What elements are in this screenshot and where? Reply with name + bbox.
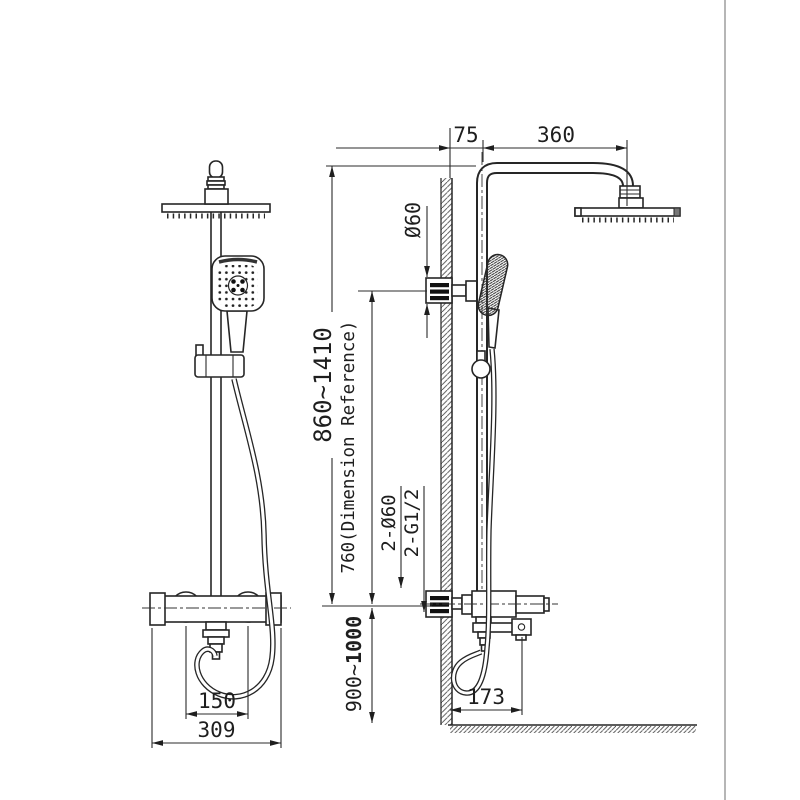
- dim-spout-reach: 173: [467, 685, 505, 709]
- dim-mount-diameter: Ø60: [401, 202, 425, 238]
- side-view: [420, 152, 697, 733]
- front-rain-shower-head: [162, 204, 270, 216]
- shower-technical-drawing: 75 360 Ø60 860~1410 760(Dimension Refere…: [0, 0, 800, 800]
- front-view: [142, 161, 291, 697]
- front-shower-hose: [197, 379, 273, 697]
- dim-handle-spacing: 150: [198, 689, 236, 713]
- floor-section: [448, 725, 697, 733]
- dim-install-height: 900~1000: [342, 616, 366, 712]
- dimensions: 75 360 Ø60 860~1410 760(Dimension Refere…: [152, 123, 627, 748]
- wall-section: [441, 178, 452, 725]
- dim-wall-offset: 75: [453, 123, 478, 147]
- dim-overall-height-range: 860~1410: [309, 327, 337, 443]
- drawing-sheet: 75 360 Ø60 860~1410 760(Dimension Refere…: [0, 0, 800, 800]
- front-hand-shower: [212, 256, 264, 352]
- dim-reference-height: 760(Dimension Reference): [339, 321, 359, 574]
- front-top-finial: [205, 161, 228, 204]
- side-wall-mount-upper: [426, 278, 477, 303]
- dim-valve-width: 309: [198, 718, 236, 742]
- dim-arm-reach: 360: [537, 123, 575, 147]
- dim-inlet-thread: 2-G1/2: [401, 489, 423, 558]
- dim-inlet-diameter: 2-Ø60: [378, 494, 400, 551]
